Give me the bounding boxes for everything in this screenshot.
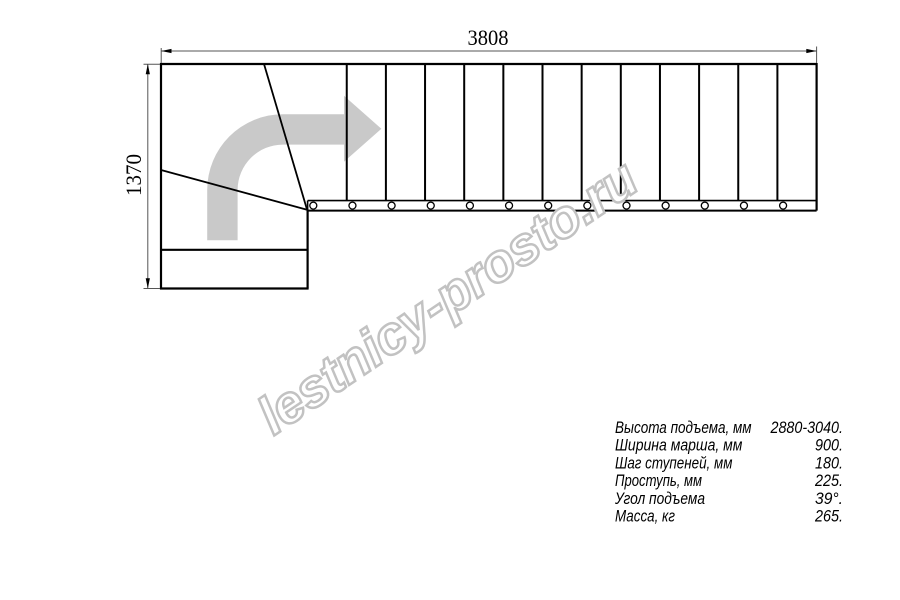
svg-text:225.: 225.: [814, 471, 843, 490]
svg-text:1370: 1370: [121, 154, 146, 196]
svg-text:2880-3040.: 2880-3040.: [770, 418, 843, 437]
svg-text:900.: 900.: [815, 436, 843, 455]
svg-text:Ширина марша, мм: Ширина марша, мм: [615, 436, 743, 455]
svg-text:180.: 180.: [815, 453, 843, 472]
svg-text:39°.: 39°.: [815, 489, 843, 508]
svg-text:Высота подъема, мм: Высота подъема, мм: [615, 418, 752, 437]
svg-text:Масса, кг: Масса, кг: [615, 507, 675, 526]
svg-text:Проступь, мм: Проступь, мм: [615, 471, 702, 490]
svg-text:265.: 265.: [814, 507, 843, 526]
svg-text:Угол подъема: Угол подъема: [614, 489, 705, 508]
svg-text:3808: 3808: [468, 25, 509, 50]
svg-text:Шаг ступеней, мм: Шаг ступеней, мм: [615, 453, 733, 472]
